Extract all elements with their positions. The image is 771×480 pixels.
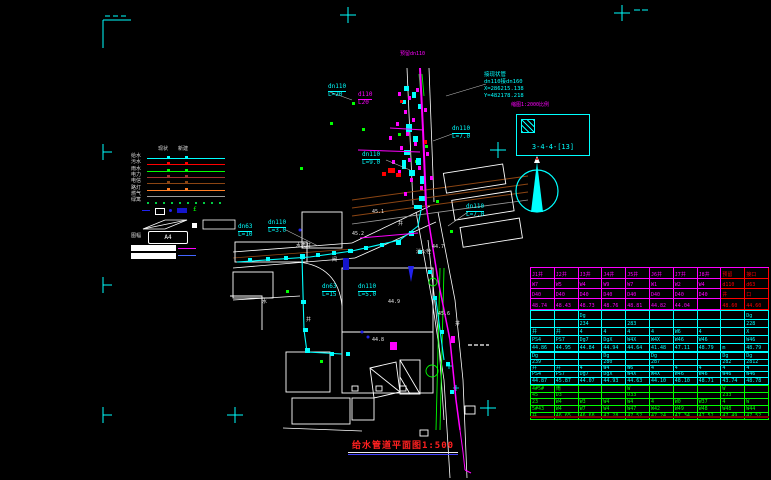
table-cell: [626, 311, 650, 320]
legend-row-marker: [167, 156, 170, 159]
legend-shapes: [129, 219, 249, 231]
table-cell: 44.82: [650, 299, 674, 310]
table-cell: W46: [698, 336, 722, 344]
table-cell: 接口: [745, 268, 769, 279]
box-symbol: [155, 208, 165, 215]
legend-blue-line: [178, 255, 196, 256]
table-cell: 48.78: [745, 378, 769, 385]
scatter-text: 44.8: [372, 338, 384, 343]
legend-row-marker: [185, 156, 188, 159]
table-cell: [555, 353, 579, 360]
table-group-1: DgDg234283228井井4444W64XPS4PS7Dg7DgXW4XW4…: [530, 310, 769, 352]
scatter-text: 井: [398, 222, 403, 227]
pipe-label-7: dn110L=5.0: [358, 284, 376, 298]
scatter-text: 井: [306, 318, 311, 323]
table-cell: W7: [626, 279, 650, 289]
table-cell: [698, 353, 722, 360]
table-cell: J3井: [579, 268, 603, 279]
table-cell: W4: [555, 399, 579, 406]
table-cell: D40: [531, 289, 555, 299]
blue-dash-symbol: [142, 210, 150, 211]
table-cell: 44.87: [531, 378, 555, 385]
legend-row-label: 绿篱: [131, 198, 141, 203]
table-cell: [602, 386, 626, 393]
legend-row-marker: [185, 175, 188, 178]
legend-row-7: 绿篱: [129, 200, 249, 206]
table-cell: W3: [579, 399, 603, 406]
pipe-label-length: L=3.0: [268, 228, 286, 234]
table-cell: 48.79: [745, 344, 769, 352]
cad-canvas[interactable]: 现状 新建 给水污水雨水电力电信路灯燃气绿篱 £ 图幅 A4: [0, 0, 771, 480]
table-cell: W4X: [626, 336, 650, 344]
table-cell: Dg7: [579, 336, 603, 344]
table-cell: W48: [698, 406, 722, 413]
legend-bar-1: [131, 245, 176, 251]
legend-row-label: 电信: [131, 179, 141, 184]
sheet-label: 图幅: [131, 234, 141, 239]
pipe-label-length: L=7.0: [452, 134, 470, 140]
pipe-label-6: dn63L=15: [322, 284, 336, 298]
table-cell: Dg: [745, 353, 769, 360]
table-cell: W6: [674, 328, 698, 336]
table-cell: [650, 311, 674, 320]
table-cell: W46: [674, 336, 698, 344]
pipe-label-1: d110L20: [358, 92, 372, 106]
table-cell: X: [745, 328, 769, 336]
table-cell: d110: [721, 279, 745, 289]
table-cell: [698, 299, 722, 310]
table-cell: W44: [745, 406, 769, 413]
hatch-swatch: [521, 119, 535, 133]
pipe-label-length: L=5.0: [358, 292, 376, 298]
table-cell: Dg: [721, 353, 745, 360]
legend-row-marker: [167, 181, 170, 184]
legend-header-new: 新建: [178, 147, 188, 152]
table-cell: m: [721, 344, 745, 352]
table-cell: W37: [698, 399, 722, 406]
legend-row-marker: [185, 169, 188, 172]
table-cell: [555, 320, 579, 328]
table-cell: W47: [626, 406, 650, 413]
table-cell: 预留: [721, 268, 745, 279]
table-cell: D40: [698, 289, 722, 299]
table-cell: 雨: [555, 386, 579, 393]
table-cell: [674, 353, 698, 360]
table-cell: [674, 311, 698, 320]
legend-row-label: 雨水: [131, 167, 141, 172]
table-cell: W0: [674, 399, 698, 406]
table-cell: D40: [555, 289, 579, 299]
legend-row-0: 给水: [129, 156, 249, 162]
table-cell: 4: [721, 399, 745, 406]
legend-row-line: [147, 202, 225, 204]
table-cell: [674, 386, 698, 393]
table-cell: W4: [555, 406, 579, 413]
legend-magenta-line: [178, 248, 196, 249]
table-cell: Dg: [531, 353, 555, 360]
pipe-data-table[interactable]: J1井J2井J3井J4井J5井J6井J7井J8井预留接口W7W5W4W9W7W1…: [530, 267, 769, 420]
scatter-text: 水表井: [296, 244, 311, 249]
table-cell: 4: [698, 328, 722, 336]
table-cell: [721, 311, 745, 320]
title-text: 给水管道平面图1:500: [348, 441, 458, 451]
green-glyph-symbol: £: [193, 206, 197, 213]
table-cell: W46: [745, 336, 769, 344]
pipe-label-5: dn110L=3.0: [268, 220, 286, 234]
table-underline: [530, 416, 769, 418]
table-cell: 4: [626, 328, 650, 336]
table-cell: 48.10: [674, 378, 698, 385]
table-cell: [721, 320, 745, 328]
table-cell: W7: [531, 279, 555, 289]
table-cell: W49: [674, 406, 698, 413]
title-underline-2: [348, 454, 458, 455]
scatter-text: 45.6: [438, 312, 450, 317]
table-cell: J1井: [531, 268, 555, 279]
table-cell: 48.60: [721, 299, 745, 310]
table-cell: 48.74: [531, 299, 555, 310]
legend-row-line: [147, 196, 225, 197]
legend-row-5: 路灯: [129, 188, 249, 194]
coord-line-3: X=286215.138: [484, 86, 524, 93]
table-cell: W: [745, 399, 769, 406]
legend-row-2: 雨水: [129, 169, 249, 175]
scatter-text: 45.1: [372, 210, 384, 215]
table-cell: [602, 311, 626, 320]
pipe-label-length: L=7.0: [466, 212, 484, 218]
table-cell: J8井: [698, 268, 722, 279]
table-cell: 4: [650, 399, 674, 406]
table-cell: [555, 311, 579, 320]
legend-row-marker: [185, 162, 188, 165]
table-cell: Dg: [579, 311, 603, 320]
table-cell: 44.07: [579, 378, 603, 385]
coordinate-annotation: 接现状管 dn110接dn160 X=286215.138 Y=482178.2…: [484, 72, 524, 100]
table-cell: Dg: [745, 311, 769, 320]
table-cell: 44.84: [579, 344, 603, 352]
coord-line-1: 接现状管: [484, 72, 524, 79]
table-cell: [721, 328, 745, 336]
legend-row-1: 污水: [129, 162, 249, 168]
table-cell: 井: [555, 328, 579, 336]
water-pipes: [237, 86, 459, 394]
table-cell: J2井: [555, 268, 579, 279]
table-cell: PS4: [531, 336, 555, 344]
table-cell: W5: [555, 279, 579, 289]
table-cell: W48: [721, 406, 745, 413]
table-cell: 47.11: [674, 344, 698, 352]
table-cell: 234: [579, 320, 603, 328]
table-cell: 口: [745, 289, 769, 299]
table-cell: [650, 386, 674, 393]
legend-sheet-row: 图幅 A4: [129, 231, 249, 245]
north-arrow[interactable]: [516, 156, 558, 212]
table-cell: W9: [602, 279, 626, 289]
table-cell: 23: [531, 399, 555, 406]
table-cell: 4: [650, 328, 674, 336]
table-cell: 44.04: [674, 299, 698, 310]
table-cell: [602, 320, 626, 328]
legend-row-marker: [185, 181, 188, 184]
table-cell: 48.43: [555, 299, 579, 310]
scatter-text: 水: [262, 300, 267, 305]
scatter-text: 44.7: [432, 245, 444, 250]
table-cell: W4: [579, 279, 603, 289]
table-cell: 48.71: [698, 378, 722, 385]
table-cell: 44.60: [745, 299, 769, 310]
table-cell: [650, 320, 674, 328]
table-cell: J7井: [674, 268, 698, 279]
table-cell: D40: [602, 289, 626, 299]
table-cell: W4: [602, 406, 626, 413]
table-cell: 44.63: [626, 378, 650, 385]
scatter-text: 消火栓: [416, 250, 431, 255]
table-cell: 44.64: [626, 344, 650, 352]
table-cell: W2: [674, 279, 698, 289]
index-map-label: 缩图1:2000比例: [511, 103, 549, 108]
index-map-box[interactable]: 3-4-4-[13]: [516, 114, 590, 156]
scatter-text: 44.9: [388, 300, 400, 305]
legend-row-3: 电力: [129, 175, 249, 181]
table-cell: 4#5#: [531, 386, 555, 393]
table-cell: 43.74: [721, 378, 745, 385]
legend-row-marker: [167, 175, 170, 178]
table-cell: 4: [602, 328, 626, 336]
scatter-text: 阀: [332, 258, 337, 263]
legend-symbols-row: £: [129, 207, 249, 215]
table-cell: 44.10: [650, 378, 674, 385]
table-cell: [531, 320, 555, 328]
scatter-text: 井: [455, 322, 460, 327]
table-cell: J4井: [602, 268, 626, 279]
title-underline-1: [348, 452, 458, 453]
sheet-box: A4: [148, 231, 188, 244]
table-cell: J6井: [650, 268, 674, 279]
misc-symbols: [286, 84, 489, 345]
table-cell: 井: [721, 289, 745, 299]
legend[interactable]: 现状 新建 给水污水雨水电力电信路灯燃气绿篱 £ 图幅 A4: [129, 143, 249, 267]
table-cell: W: [721, 386, 745, 393]
legend-row-marker: [167, 188, 170, 191]
table-cell: D40: [579, 289, 603, 299]
legend-row-label: 路灯: [131, 186, 141, 191]
scatter-text: 45.2: [352, 232, 364, 237]
table-cell: 48.79: [698, 344, 722, 352]
navy-box-symbol: [177, 208, 187, 213]
legend-header-existing: 现状: [158, 147, 168, 152]
blue-dot-symbol: [169, 209, 172, 212]
table-cell: D40: [674, 289, 698, 299]
table-cell: Dg: [602, 353, 626, 360]
table-cell: W7: [579, 406, 603, 413]
table-cell: [579, 386, 603, 393]
reserved-pipe-note: 预留dn110: [400, 52, 425, 57]
pipe-label-3: dn110L=9.0: [362, 152, 380, 166]
legend-row-marker: [167, 169, 170, 172]
pipe-label-0: dn110L=20: [328, 84, 346, 98]
table-cell: [721, 336, 745, 344]
table-cell: d63: [745, 279, 769, 289]
table-cell: [531, 311, 555, 320]
table-group-0: J1井J2井J3井J4井J5井J6井J7井J8井预留接口W7W5W4W9W7W1…: [530, 267, 769, 310]
table-cell: 44.94: [602, 344, 626, 352]
legend-row-marker: [185, 188, 188, 191]
table-cell: 井: [531, 328, 555, 336]
table-cell: 283: [626, 320, 650, 328]
table-cell: 44.93: [602, 378, 626, 385]
table-cell: [745, 386, 769, 393]
table-cell: 48.81: [626, 299, 650, 310]
pipe-label-length: L=20: [328, 92, 346, 98]
table-cell: W: [626, 386, 650, 393]
table-cell: [674, 320, 698, 328]
table-cell: W4: [602, 399, 626, 406]
table-cell: W1: [650, 279, 674, 289]
pipe-label-2: dn110L=7.0: [452, 126, 470, 140]
table-cell: 41.48: [650, 344, 674, 352]
table-cell: 48.76: [602, 299, 626, 310]
table-cell: 44.86: [531, 344, 555, 352]
table-cell: PS7: [555, 336, 579, 344]
table-group-3: 4#5#雨WW45D3D3323323W4W3W4W44W0W374W5#43W…: [530, 385, 769, 420]
table-cell: W4: [626, 399, 650, 406]
pipe-label-length: L=15: [322, 292, 336, 298]
pipe-label-8: dn110L=7.0: [466, 204, 484, 218]
table-cell: [698, 311, 722, 320]
table-cell: [626, 353, 650, 360]
sheet-code: 3-4-4-[13]: [517, 143, 589, 151]
pipe-label-length: L20: [358, 100, 372, 106]
table-cell: Dg: [650, 353, 674, 360]
coord-line-4: Y=482178.218: [484, 93, 524, 100]
table-cell: W4X: [650, 336, 674, 344]
table-cell: J5井: [626, 268, 650, 279]
table-cell: [579, 353, 603, 360]
pipe-label-4: dn63L=10: [238, 224, 252, 238]
table-cell: DgX: [602, 336, 626, 344]
table-cell: D40: [626, 289, 650, 299]
legend-row-6: 燃气: [129, 194, 249, 200]
table-cell: W42: [650, 406, 674, 413]
table-cell: [698, 386, 722, 393]
table-cell: W4: [698, 279, 722, 289]
table-cell: 45.87: [555, 378, 579, 385]
table-cell: 5#43: [531, 406, 555, 413]
table-cell: [698, 320, 722, 328]
drawing-title[interactable]: 给水管道平面图1:500: [348, 441, 458, 455]
pipe-label-length: L=9.0: [362, 160, 380, 166]
legend-row-marker: [167, 162, 170, 165]
legend-row-4: 电信: [129, 181, 249, 187]
pipe-label-length: L=10: [238, 232, 252, 238]
coord-line-2: dn110接dn160: [484, 79, 524, 86]
legend-bar-2: [131, 253, 176, 259]
legend-row-label: 污水: [131, 160, 141, 165]
table-group-2: DgDgDgDgDg2392802872822812井井4W4W644444PS…: [530, 352, 769, 385]
table-cell: 48.73: [579, 299, 603, 310]
legend-shapes-row: [129, 216, 249, 228]
table-cell: 228: [745, 320, 769, 328]
table-cell: D40: [650, 289, 674, 299]
table-cell: 4: [579, 328, 603, 336]
table-cell: 44.95: [555, 344, 579, 352]
